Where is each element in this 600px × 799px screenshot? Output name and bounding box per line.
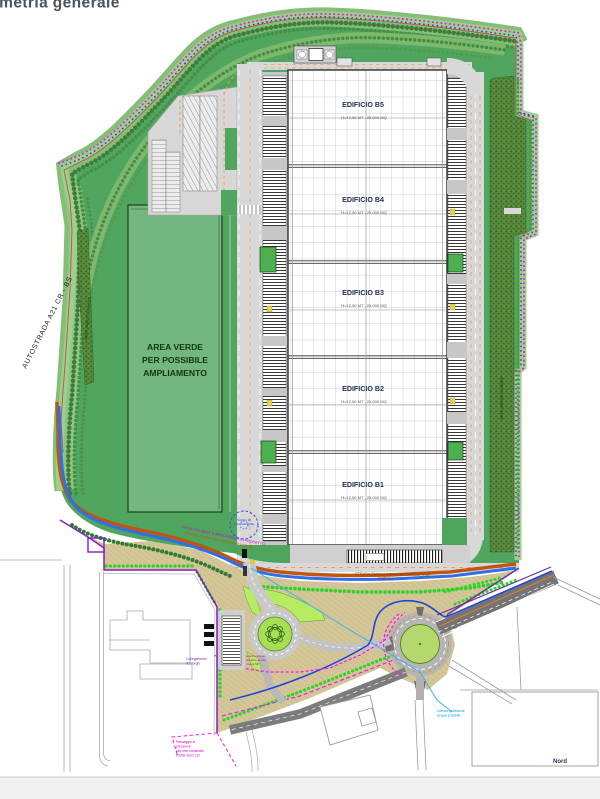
svg-text:lunghezza: lunghezza — [378, 576, 394, 580]
svg-text:acqua potabile: acqua potabile — [437, 714, 460, 718]
svg-text:LAMINAZIONE: LAMINAZIONE — [234, 522, 254, 526]
svg-text:S.Giorgio: S.Giorgio — [186, 662, 200, 666]
svg-text:olio rete comunale: olio rete comunale — [176, 749, 204, 753]
svg-text:H=12,50 MT - 25.000 MQ: H=12,50 MT - 25.000 MQ — [341, 495, 386, 500]
svg-text:nuova SP: nuova SP — [246, 662, 259, 666]
svg-text:EDIFICIO B2: EDIFICIO B2 — [342, 385, 384, 393]
svg-text:H=12,50 MT - 25.000 MQ: H=12,50 MT - 25.000 MQ — [341, 399, 386, 404]
svg-text:EDIFICIO B1: EDIFICIO B1 — [342, 481, 384, 489]
svg-text:EDIFICIO B5: EDIFICIO B5 — [342, 101, 384, 109]
svg-text:AREA VERDE: AREA VERDE — [147, 342, 203, 352]
svg-text:EDIFICIO B3: EDIFICIO B3 — [342, 289, 384, 297]
svg-text:PEAD diam 110: PEAD diam 110 — [176, 754, 200, 758]
svg-text:H=12,50 MT - 25.000 MQ: H=12,50 MT - 25.000 MQ — [341, 115, 386, 120]
svg-text:planimetria generale: planimetria generale — [0, 0, 120, 12]
svg-text:EDIFICIO B4: EDIFICIO B4 — [342, 196, 384, 204]
svg-text:PER POSSIBILE: PER POSSIBILE — [142, 355, 208, 365]
svg-text:Nord: Nord — [553, 759, 567, 765]
svg-text:Collegamento: Collegamento — [186, 657, 207, 661]
svg-text:AMPLIAMENTO: AMPLIAMENTO — [143, 368, 207, 378]
svg-text:SIEPE ARBUSTIVA MISTA: SIEPE ARBUSTIVA MISTA — [500, 376, 504, 420]
svg-text:H=12,50 MT - 25.000 MQ: H=12,50 MT - 25.000 MQ — [341, 210, 386, 215]
svg-text:Utenze pubbliche: Utenze pubbliche — [437, 709, 465, 713]
svg-text:H=12,50 MT - 25.000 MQ: H=12,50 MT - 25.000 MQ — [341, 303, 386, 308]
svg-text:pressione: pressione — [176, 745, 191, 749]
svg-text:Passaggio in: Passaggio in — [176, 740, 196, 744]
